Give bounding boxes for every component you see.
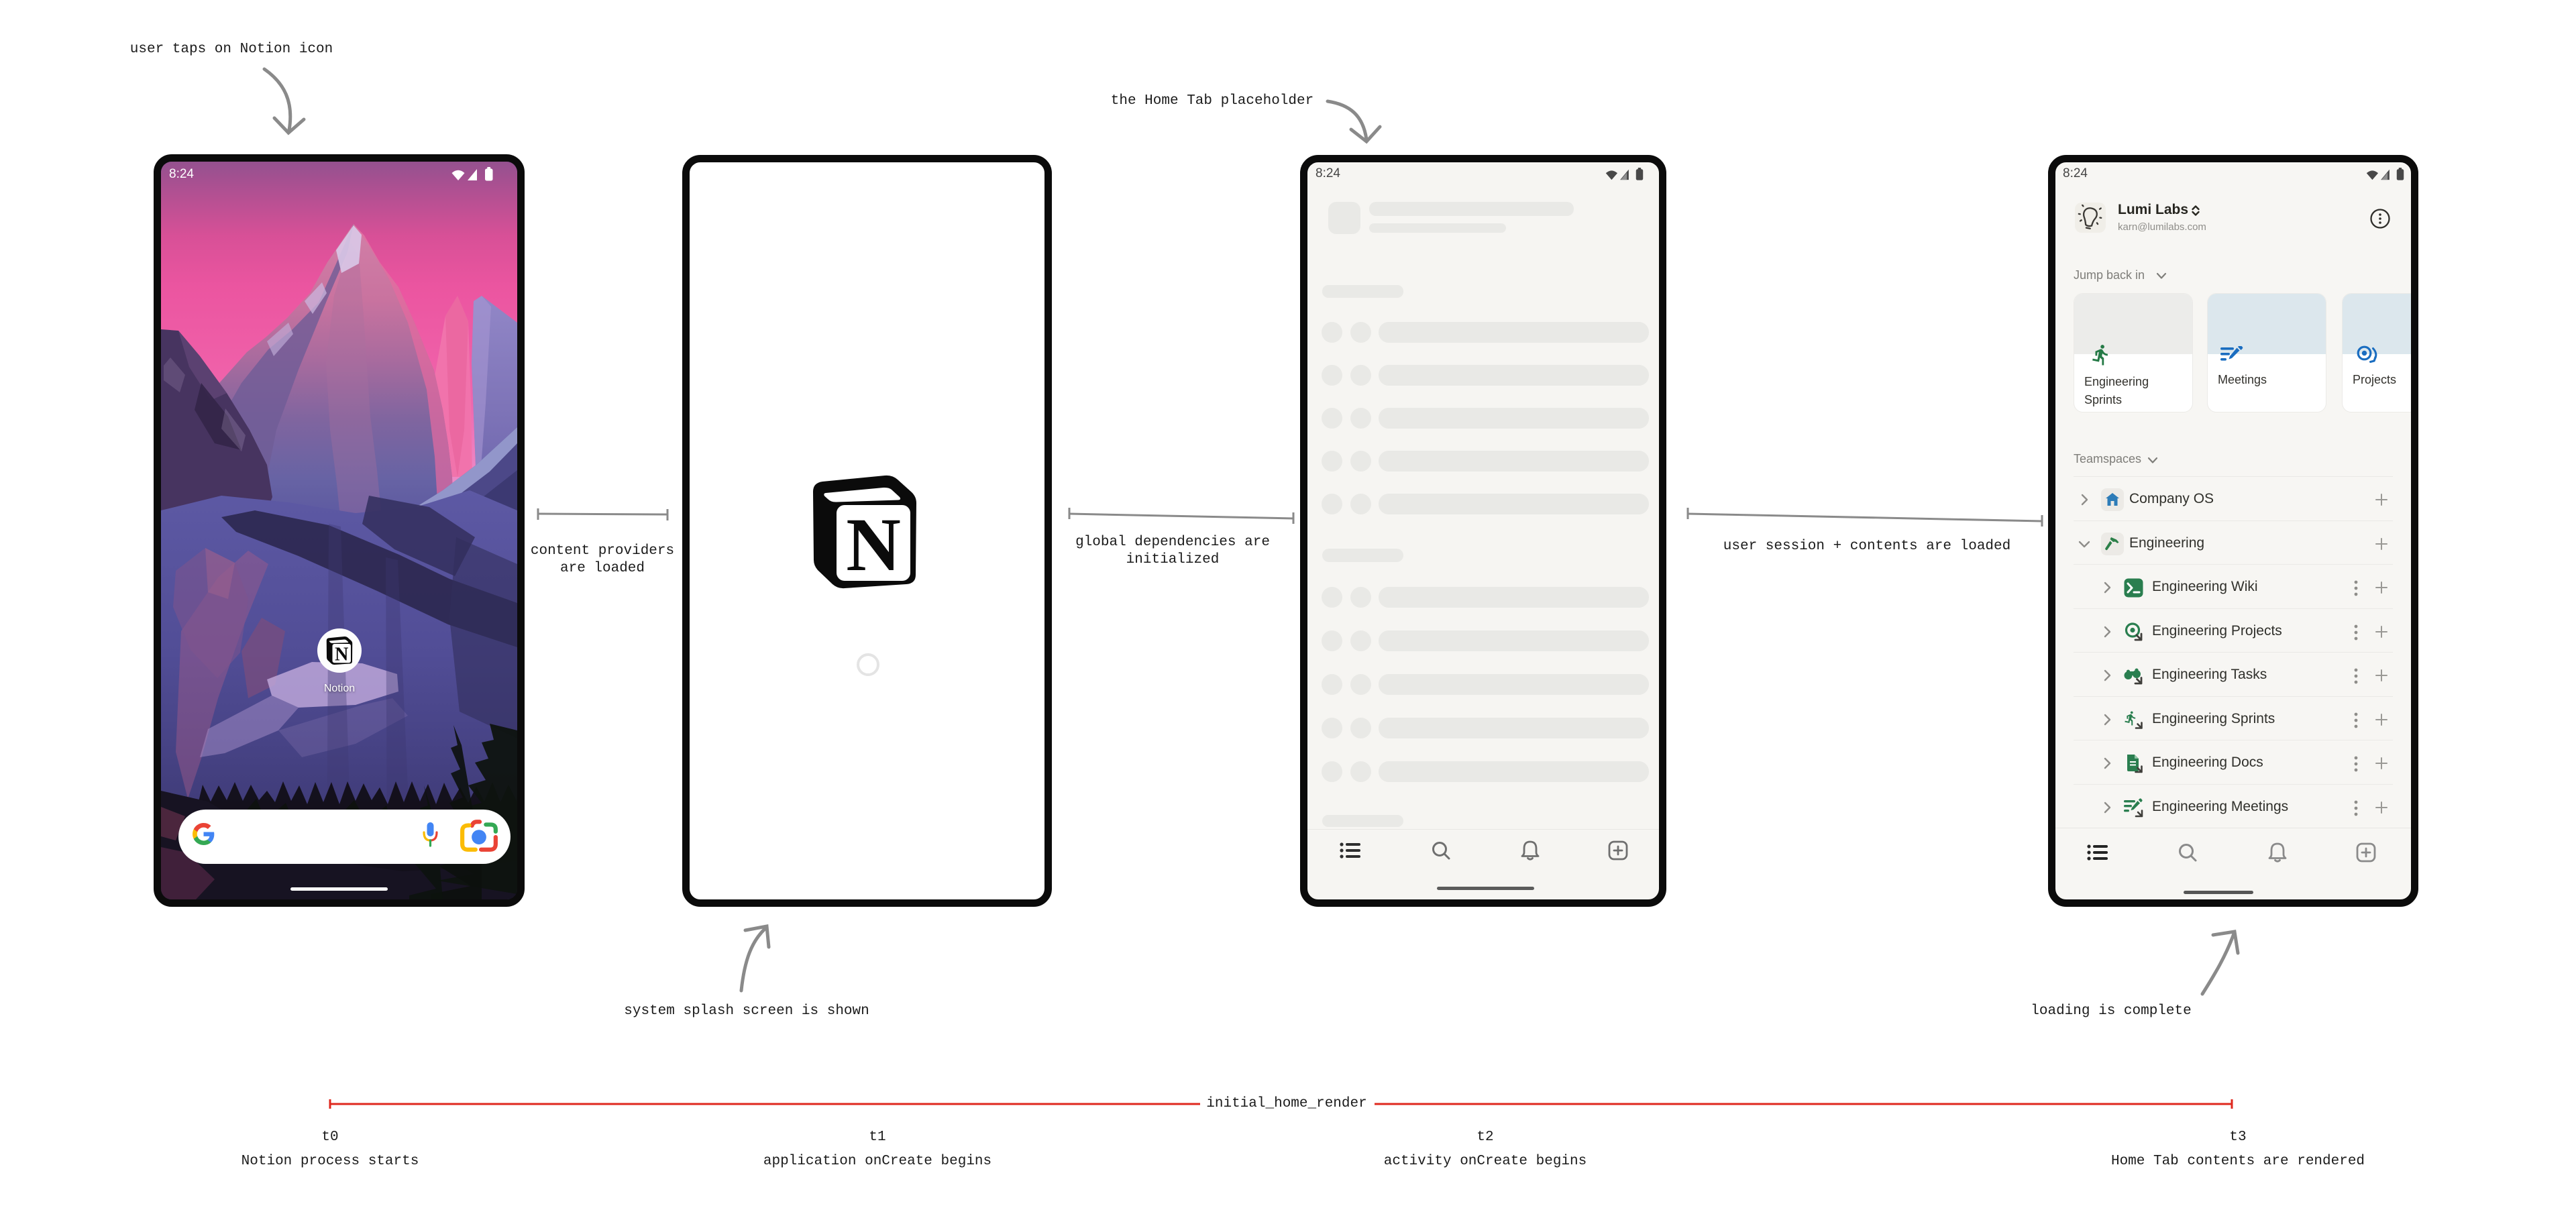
svg-text:N: N — [846, 503, 901, 587]
svg-text:N: N — [335, 644, 349, 665]
